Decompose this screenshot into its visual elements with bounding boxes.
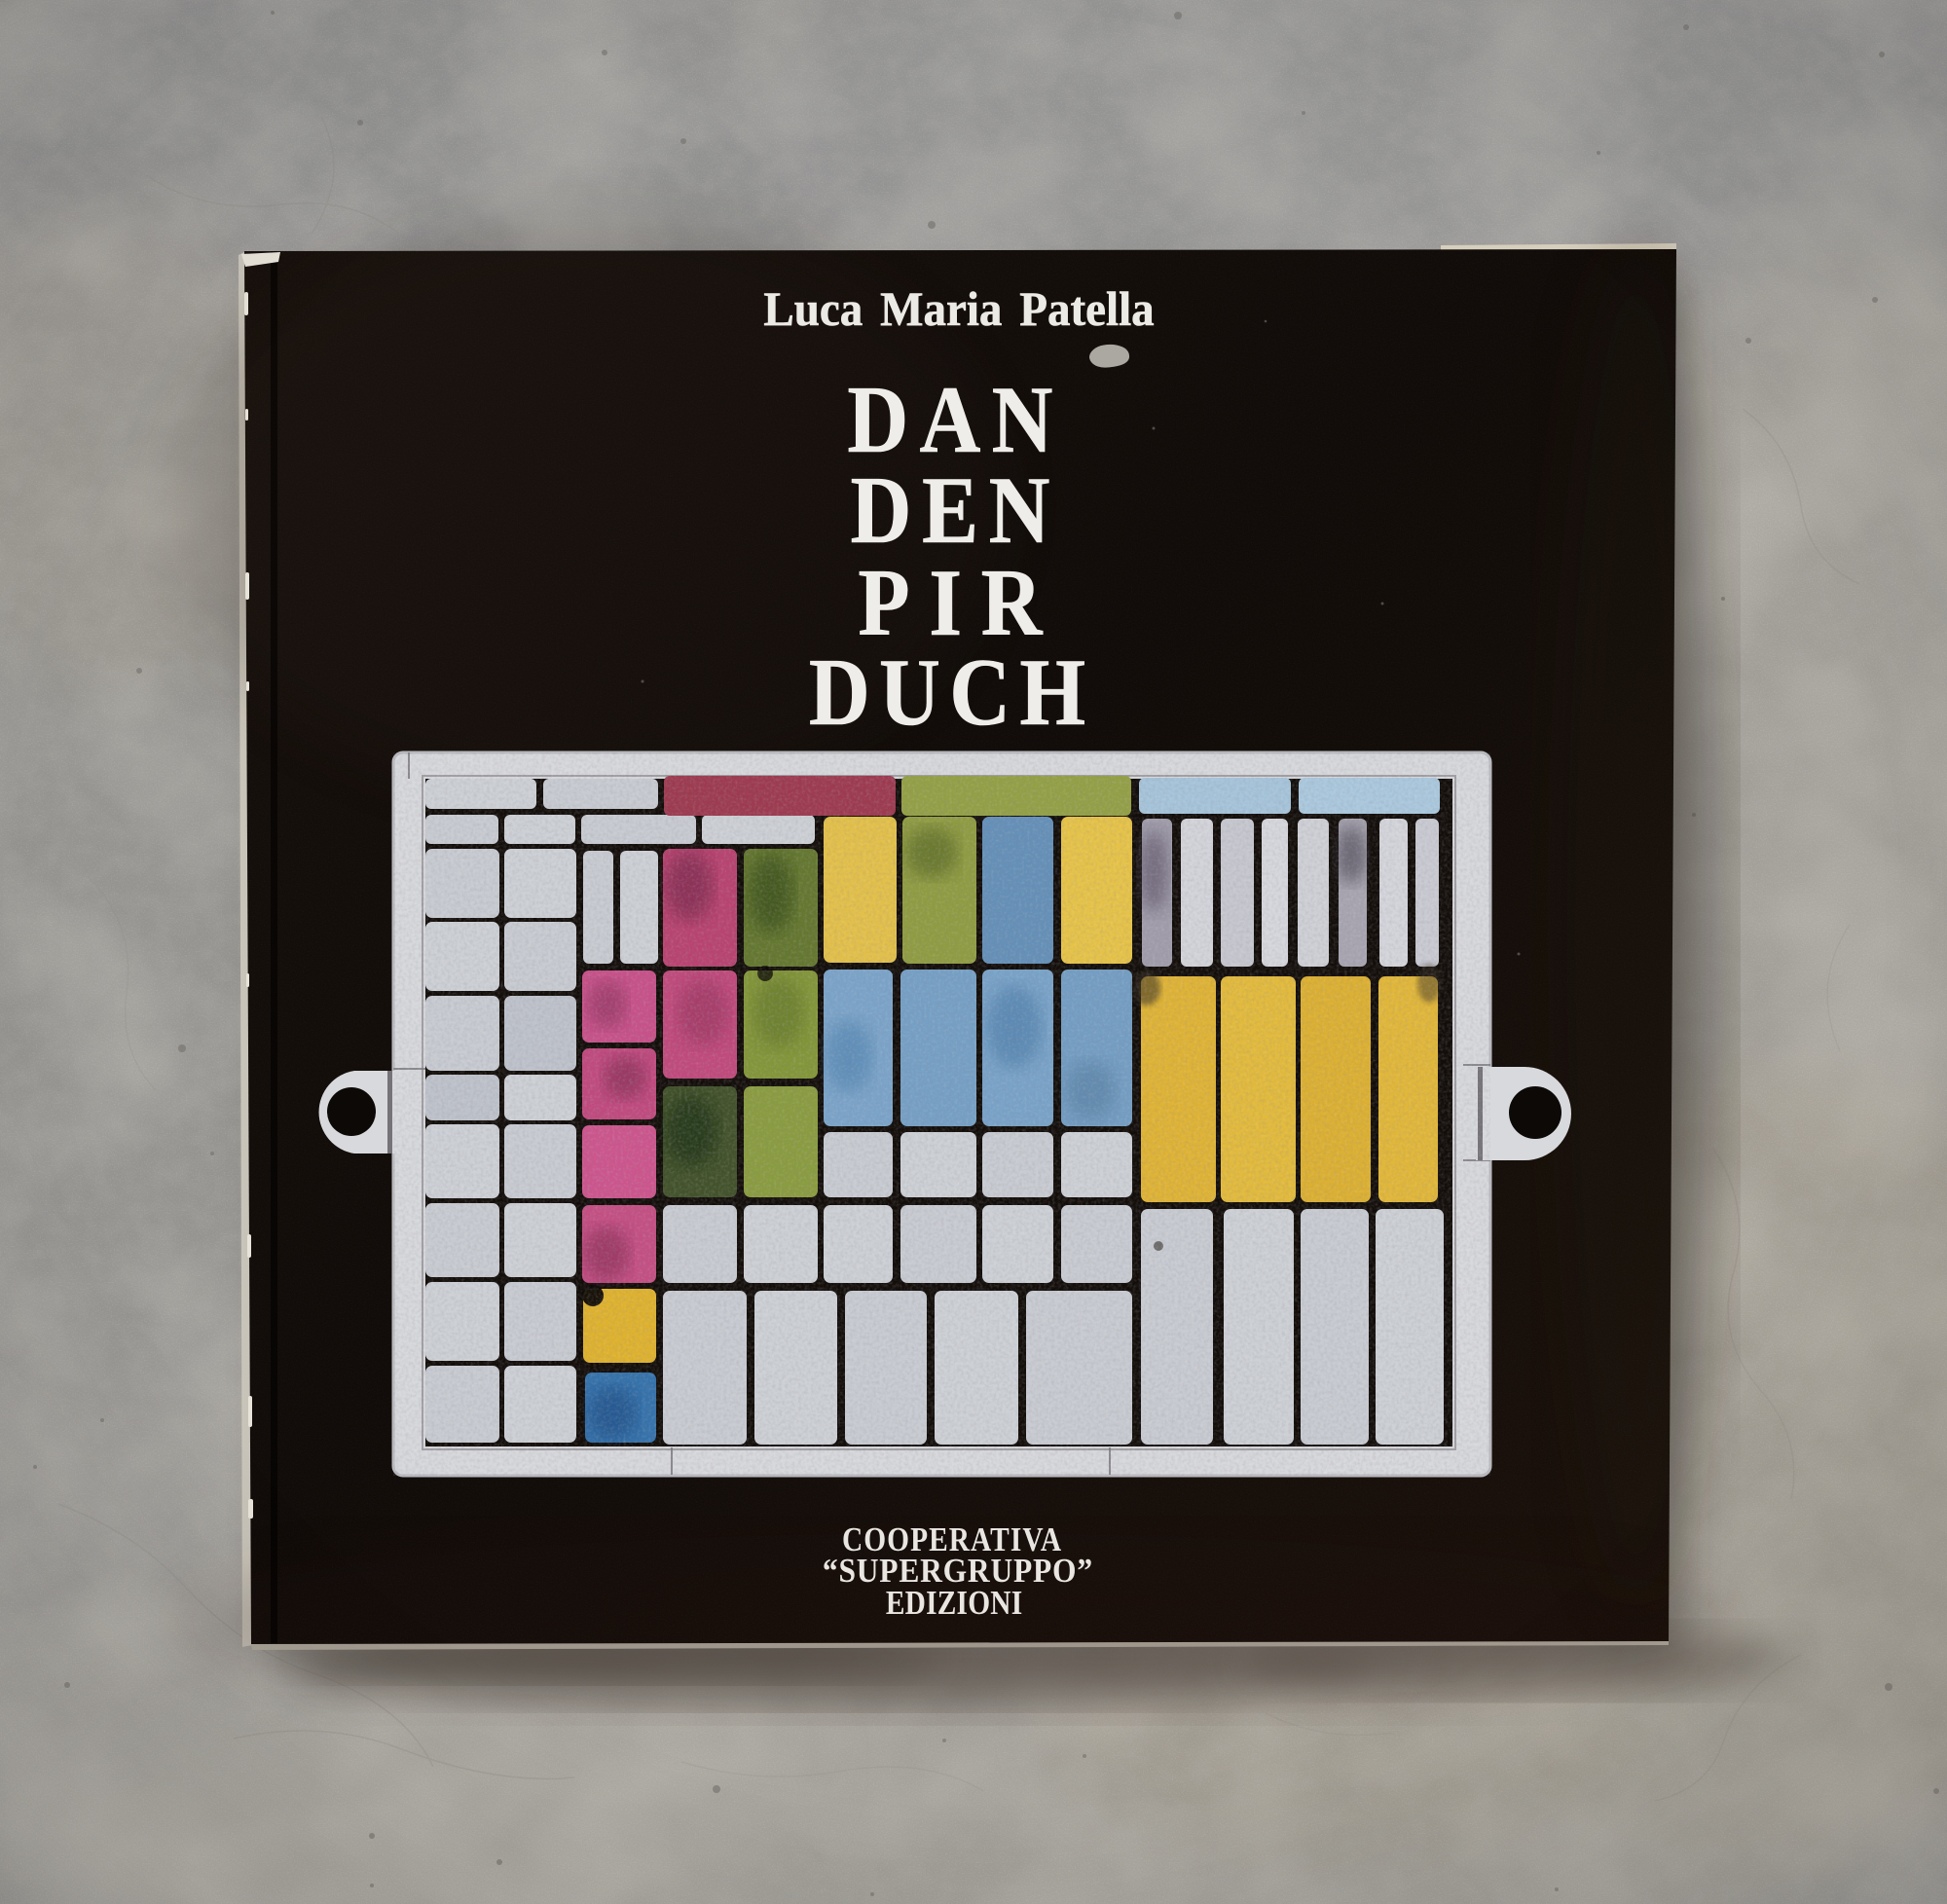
svg-text:EDIZIONI: EDIZIONI [886,1584,1022,1622]
